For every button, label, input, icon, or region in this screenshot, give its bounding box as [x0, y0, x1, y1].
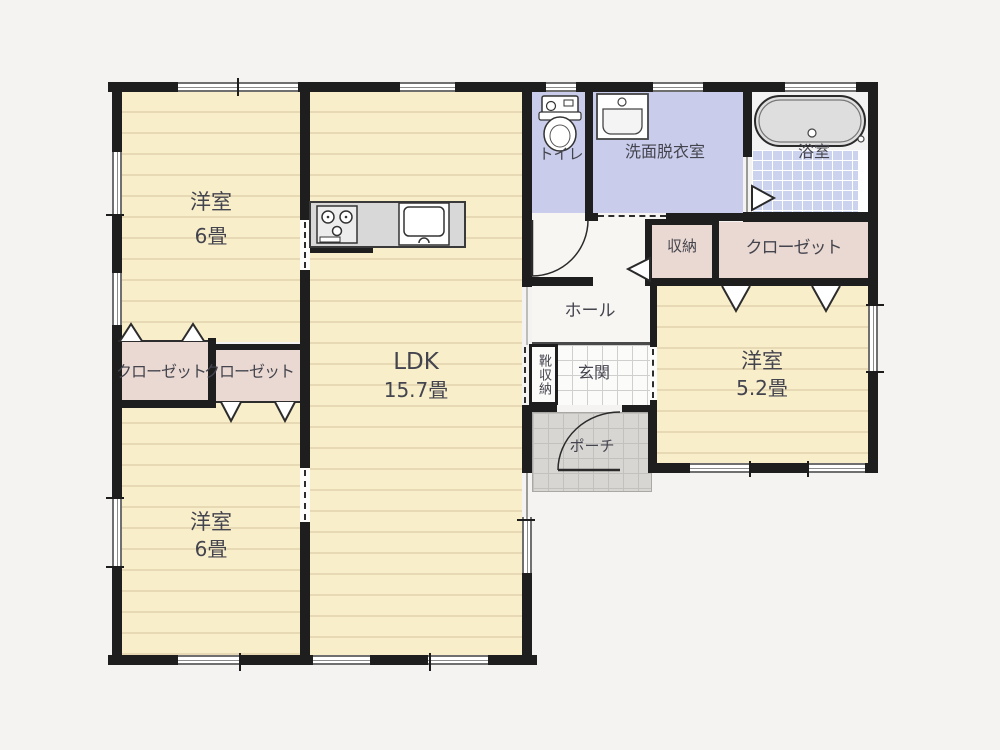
wall-closet-west-right-north [216, 344, 300, 350]
wall-divider-west-c [300, 522, 310, 665]
window-bottom-bedroom-sw [178, 655, 240, 665]
label-bedroom-e-area: 5.2畳 [697, 378, 827, 399]
room-bedroom-nw-floor [122, 92, 300, 342]
window-bottom-ldk-a [313, 655, 370, 665]
wall-washroom-south-a [585, 213, 598, 221]
wall-bathroom-west [743, 82, 752, 157]
label-bedroom-nw-area: 6畳 [146, 226, 276, 247]
window-bottom-bedroom-e-b [808, 463, 865, 473]
window-top-bedroom-nw [178, 82, 298, 92]
label-closet-west-left: クローゼット [113, 364, 209, 381]
label-bedroom-e-name: 洋室 [697, 350, 827, 372]
label-porch: ポーチ [562, 439, 622, 455]
label-closet-west-right: クローゼット [201, 364, 297, 381]
closet-west-right-door-line [216, 401, 300, 403]
shoe-storage-box: 靴収納 [529, 344, 558, 405]
window-left-upper [112, 152, 122, 215]
wall-entrance-south-b [622, 405, 657, 412]
label-ldk-name: LDK [351, 350, 481, 374]
label-hall: ホール [555, 303, 625, 321]
shoe-storage-label: 靴収納 [534, 354, 553, 396]
label-storage: 収納 [652, 239, 712, 255]
room-bedroom-e-floor [657, 286, 868, 463]
label-bedroom-sw-area: 6畳 [146, 539, 276, 560]
wall-ldk-east-a [522, 82, 532, 287]
wall-storage-north [645, 219, 719, 225]
label-bathroom: 浴室 [784, 144, 844, 161]
window-right-bedroom-e [868, 305, 878, 372]
label-bedroom-sw-name: 洋室 [146, 511, 276, 533]
label-washroom: 洗面脱衣室 [620, 144, 710, 161]
wall-porch-east [648, 405, 657, 473]
label-ldk-area: 15.7畳 [351, 380, 481, 401]
closet-west-left-door-line [118, 340, 208, 342]
hall-passage-edge [526, 287, 528, 345]
window-left-middle [112, 273, 122, 325]
label-toilet: トイレ [525, 147, 597, 163]
wall-porch-west [522, 405, 532, 473]
window-bottom-bedroom-e-a [690, 463, 750, 473]
shoe-storage-back-dash [524, 347, 526, 403]
ldk-east-thin-line [526, 473, 528, 519]
wall-ldk-east-b [522, 573, 532, 665]
floor-plan: 靴収納 [0, 0, 1000, 750]
wall-divider-west-b [300, 270, 310, 468]
window-ldk-east [522, 517, 532, 573]
window-top-bathroom [785, 82, 856, 92]
sliding-door-washroom [598, 215, 666, 217]
window-top-washroom [653, 82, 703, 92]
wall-storage-west [645, 222, 652, 286]
wall-entrance-south-a [522, 405, 557, 412]
wall-kitchen-stub [302, 245, 373, 253]
label-closet-east: クローゼット [736, 240, 851, 258]
window-bottom-ldk-b [428, 655, 488, 665]
sliding-door-bedroom-e [652, 349, 654, 398]
wall-divider-west-a [300, 82, 310, 220]
wall-closet-west-left-south [112, 400, 216, 408]
sliding-door-bedroom-sw [304, 470, 306, 520]
bathroom-door-line [746, 157, 748, 213]
label-bedroom-nw-name: 洋室 [146, 191, 276, 213]
window-left-lower [112, 498, 122, 567]
wall-hall-east [650, 286, 657, 347]
wall-hall-stub [532, 277, 593, 286]
bathroom-door-track [858, 150, 868, 212]
wall-storage-closet-divider [712, 222, 719, 286]
wall-closet-east-south [645, 278, 878, 286]
window-top-toilet [546, 82, 576, 92]
wall-bathroom-south [743, 212, 878, 222]
sliding-door-bedroom-nw [304, 222, 306, 268]
window-top-ldk [400, 82, 455, 92]
label-entrance: 玄関 [566, 365, 622, 382]
